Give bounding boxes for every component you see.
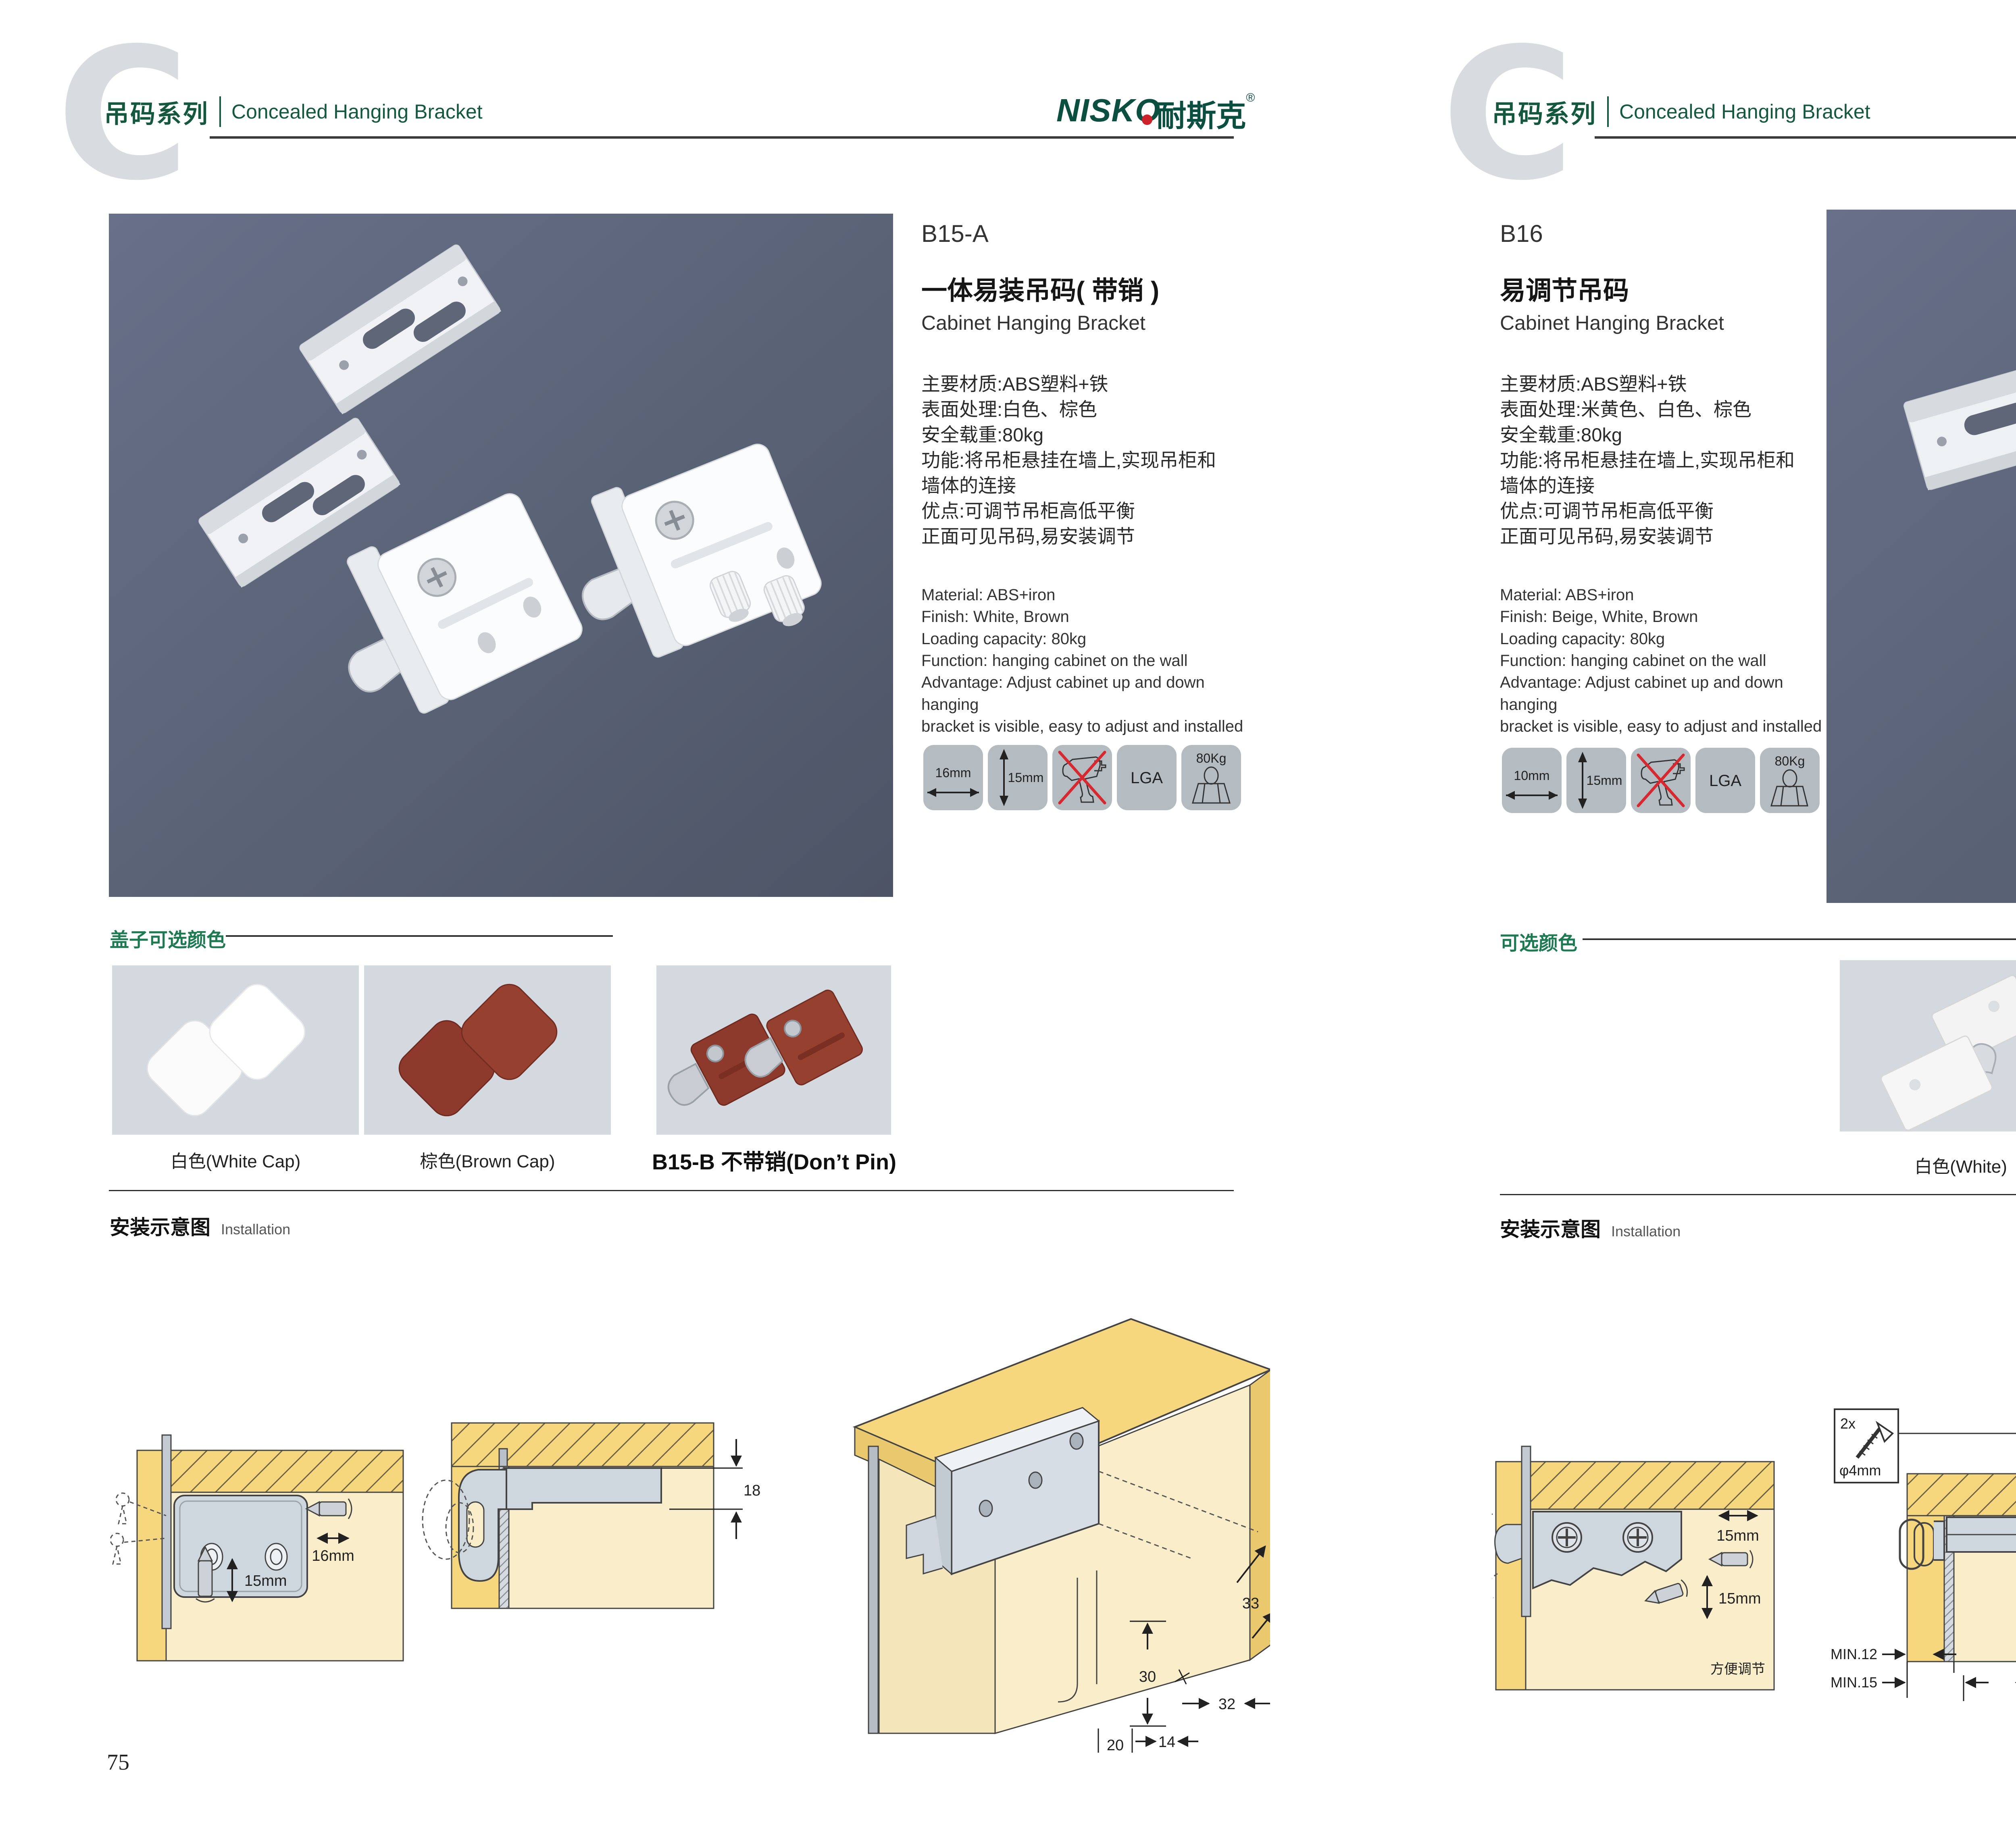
svg-text:MIN.12: MIN.12 <box>1831 1646 1877 1662</box>
spec-line: 安全载重:80kg <box>921 422 1244 448</box>
installation-title: 安装示意图 Installation <box>1500 1213 1681 1242</box>
svg-text:15mm: 15mm <box>1587 773 1622 788</box>
catalog-spread: C 吊码系列 Concealed Hanging Bracket NISKO 耐… <box>0 0 2016 1847</box>
spec-line: 功能:将吊柜悬挂在墙上,实现吊柜和 <box>1500 448 1822 473</box>
svg-text:15mm: 15mm <box>244 1572 287 1589</box>
series-title-cn: 吊码系列 <box>1492 94 1597 130</box>
spec-line: bracket is visible, easy to adjust and i… <box>921 716 1244 737</box>
brand-logo-cn: 耐斯克 <box>1156 92 1246 135</box>
spec-line: 正面可见吊码,易安装调节 <box>1500 524 1822 549</box>
installation-title: 安装示意图 Installation <box>110 1211 290 1240</box>
no-drill-icon <box>1052 745 1112 810</box>
header-rule <box>1595 136 2016 139</box>
lga-cert-icon: LGA <box>1695 748 1755 813</box>
specs-en: Material: ABS+iron Finish: White, Brown … <box>921 584 1244 738</box>
brand-logo: NISKO 耐斯克 ® <box>1056 92 1255 135</box>
product-photo-b16 <box>1826 210 2016 903</box>
spec-line: bracket is visible, easy to adjust and i… <box>1500 716 1822 737</box>
page-number: 75 <box>107 1749 129 1775</box>
spec-line: 墙体的连接 <box>921 473 1244 499</box>
spec-line: 表面处理:白色、棕色 <box>921 397 1244 422</box>
diagram-side-view: 19 MIN.12 MIN.15 <box>1831 1474 2016 1701</box>
diagram-side-view: 18 <box>423 1423 760 1608</box>
product-name-cn: 易调节吊码 <box>1500 270 1822 307</box>
installation-title-en: Installation <box>221 1221 290 1238</box>
spec-line: Material: ABS+iron <box>1500 584 1822 606</box>
spec-line: 优点:可调节吊柜高低平衡 <box>921 499 1244 524</box>
spec-line: 优点:可调节吊柜高低平衡 <box>1500 499 1822 524</box>
variant-b15b-photo <box>656 965 891 1135</box>
series-title-en: Concealed Hanging Bracket <box>1619 100 1870 123</box>
svg-text:18: 18 <box>744 1482 760 1499</box>
product-name-en: Cabinet Hanging Bracket <box>921 311 1244 335</box>
svg-text:80Kg: 80Kg <box>1775 754 1805 768</box>
svg-text:80Kg: 80Kg <box>1196 751 1227 765</box>
svg-text:15mm: 15mm <box>1718 1590 1761 1607</box>
spec-line: Finish: Beige, White, Brown <box>1500 606 1822 628</box>
page-header: 吊码系列 Concealed Hanging Bracket <box>104 94 483 130</box>
specs-cn: 主要材质:ABS塑料+铁 表面处理:白色、棕色 安全载重:80kg 功能:将吊柜… <box>921 372 1244 549</box>
product-code: B15-A <box>921 220 1244 248</box>
product-photo-b16-render <box>1826 210 2016 903</box>
product-info-b16: B16 易调节吊码 Cabinet Hanging Bracket 主要材质:A… <box>1500 220 1822 738</box>
registered-mark: ® <box>1246 91 1255 105</box>
svg-text:16mm: 16mm <box>935 765 971 780</box>
variant-b15b-label: B15-B 不带销(Don’t Pin) <box>633 1144 915 1176</box>
color-option-white <box>1840 960 2016 1131</box>
load-capacity-icon: 80Kg <box>1760 748 1820 813</box>
series-title-cn: 吊码系列 <box>104 94 209 130</box>
spec-line: 功能:将吊柜悬挂在墙上,实现吊柜和 <box>921 448 1244 473</box>
series-title-en: Concealed Hanging Bracket <box>231 100 483 123</box>
header-divider <box>1607 96 1609 127</box>
svg-text:2x: 2x <box>1840 1415 1856 1432</box>
width-arrow-icon: 16mm <box>923 745 983 810</box>
screw-spec-box: 2x φ4mm <box>1835 1409 1898 1483</box>
svg-text:20: 20 <box>1107 1737 1124 1754</box>
spec-line: 主要材质:ABS塑料+铁 <box>921 372 1244 397</box>
product-photo-b15a-render <box>109 214 893 897</box>
svg-text:15mm: 15mm <box>1716 1527 1759 1544</box>
svg-text:33: 33 <box>1242 1595 1259 1612</box>
spec-line: Loading capacity: 80kg <box>921 628 1244 650</box>
spec-line: Material: ABS+iron <box>921 584 1244 606</box>
load-capacity-icon: 80Kg <box>1181 745 1241 810</box>
installation-title-en: Installation <box>1611 1223 1681 1240</box>
spec-line: Finish: White, Brown <box>921 606 1244 628</box>
spec-line: Loading capacity: 80kg <box>1500 628 1822 650</box>
svg-text:15mm: 15mm <box>1008 770 1044 785</box>
section-divider <box>109 1190 1234 1191</box>
spec-line: 墙体的连接 <box>1500 473 1822 499</box>
section-divider <box>1500 1194 2016 1195</box>
header-divider <box>219 96 221 127</box>
logo-red-dot-icon <box>1142 114 1152 125</box>
diagram-front-view: 16mm 15mm <box>110 1435 403 1661</box>
svg-text:16mm: 16mm <box>312 1547 354 1564</box>
color-option-label: 白色(White) <box>1840 1152 2016 1178</box>
svg-text:32: 32 <box>1218 1696 1235 1713</box>
svg-text:LGA: LGA <box>1131 769 1163 787</box>
product-info-b15a: B15-A 一体易装吊码( 带销 ) Cabinet Hanging Brack… <box>921 220 1244 738</box>
svg-text:方便调节: 方便调节 <box>1710 1662 1765 1677</box>
product-code: B16 <box>1500 220 1822 248</box>
svg-text:14: 14 <box>1158 1734 1175 1751</box>
svg-text:10mm: 10mm <box>1514 768 1550 783</box>
spec-line: Advantage: Adjust cabinet up and down ha… <box>1500 672 1822 716</box>
header-rule <box>210 136 1234 139</box>
diagram-perspective: 33 30 32 20 14 <box>855 1319 1270 1754</box>
color-section-title: 可选颜色 <box>1500 927 1577 955</box>
svg-text:MIN.15: MIN.15 <box>1831 1674 1877 1691</box>
installation-diagrams-left: 16mm 15mm <box>109 1290 1270 1766</box>
color-section-title: 盖子可选颜色 <box>110 924 226 952</box>
product-photo-b15a <box>109 214 893 897</box>
color-option-label: 棕色(Brown Cap) <box>364 1147 611 1173</box>
specs-en: Material: ABS+iron Finish: Beige, White,… <box>1500 584 1822 738</box>
product-name-en: Cabinet Hanging Bracket <box>1500 311 1822 335</box>
no-drill-icon <box>1631 748 1691 813</box>
installation-diagrams-right: 15mm 15mm 方便调节 2x φ4mm <box>1492 1290 2016 1766</box>
spec-line: Function: hanging cabinet on the wall <box>921 650 1244 672</box>
color-section-rule <box>226 935 613 937</box>
color-option-label: 白色(White Cap) <box>112 1147 359 1173</box>
spec-line: 主要材质:ABS塑料+铁 <box>1500 372 1822 397</box>
svg-text:LGA: LGA <box>1709 772 1741 790</box>
specs-cn: 主要材质:ABS塑料+铁 表面处理:米黄色、白色、棕色 安全载重:80kg 功能… <box>1500 372 1822 549</box>
height-arrow-icon: 15mm <box>1566 748 1626 813</box>
spec-line: 表面处理:米黄色、白色、棕色 <box>1500 397 1822 422</box>
height-arrow-icon: 15mm <box>988 745 1048 810</box>
installation-title-cn: 安装示意图 <box>110 1211 210 1240</box>
product-name-cn: 一体易装吊码( 带销 ) <box>921 270 1244 307</box>
svg-text:30: 30 <box>1139 1668 1156 1685</box>
spec-line: Function: hanging cabinet on the wall <box>1500 650 1822 672</box>
width-arrow-icon: 10mm <box>1502 748 1562 813</box>
color-section-rule <box>1583 938 2016 940</box>
diagram-front-view: 15mm 15mm 方便调节 <box>1492 1446 1774 1690</box>
spec-line: 安全载重:80kg <box>1500 422 1822 448</box>
spec-line: 正面可见吊码,易安装调节 <box>921 524 1244 549</box>
lga-cert-icon: LGA <box>1117 745 1177 810</box>
color-option-white-cap <box>112 965 359 1135</box>
svg-text:φ4mm: φ4mm <box>1839 1462 1881 1479</box>
color-option-brown-cap <box>364 965 611 1135</box>
installation-title-cn: 安装示意图 <box>1500 1213 1601 1242</box>
page-header: 吊码系列 Concealed Hanging Bracket <box>1492 94 1870 130</box>
spec-icon-strip: 16mm 15mm <box>923 745 1241 810</box>
spec-icon-strip: 10mm 15mm <box>1502 748 1820 813</box>
spec-line: Advantage: Adjust cabinet up and down ha… <box>921 672 1244 716</box>
